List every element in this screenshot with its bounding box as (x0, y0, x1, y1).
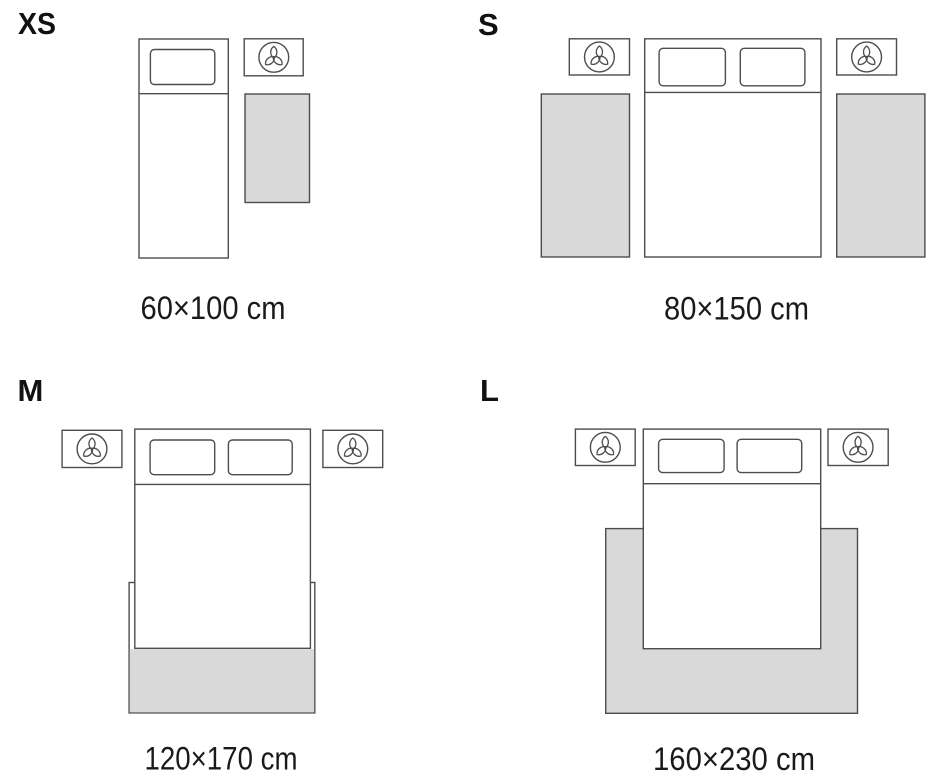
svg-text:120×170 cm: 120×170 cm (145, 741, 298, 777)
svg-text:S: S (478, 7, 499, 42)
svg-text:160×230 cm: 160×230 cm (653, 741, 815, 777)
svg-text:60×100 cm: 60×100 cm (141, 290, 286, 326)
svg-text:L: L (480, 373, 499, 408)
svg-text:80×150 cm: 80×150 cm (664, 291, 809, 327)
svg-text:XS: XS (18, 6, 56, 41)
svg-text:M: M (18, 373, 44, 408)
